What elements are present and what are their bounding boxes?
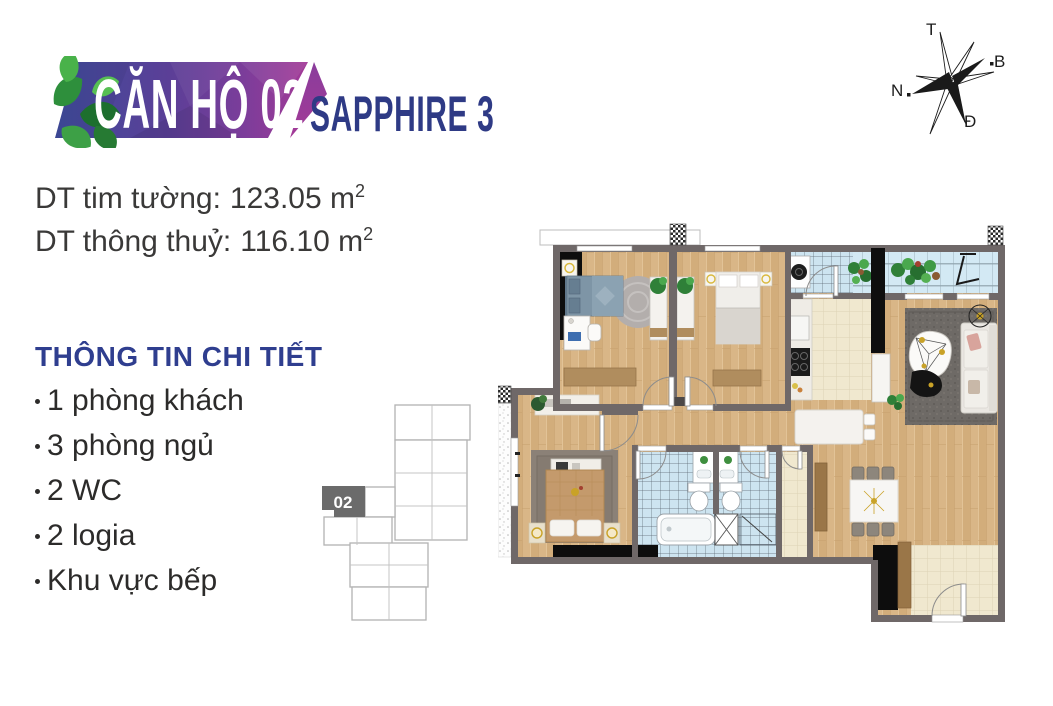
project-name: SAPPHIRE 3: [310, 89, 494, 139]
floor-plan: [498, 220, 1015, 667]
master-wardrobe: [553, 545, 658, 557]
list-item-label: 2 WC: [47, 474, 122, 507]
list-item: 1 phòng khách: [35, 384, 244, 429]
area-sup: 2: [355, 181, 365, 201]
list-item: Khu vực bếp: [35, 564, 244, 609]
fridge: [872, 354, 890, 402]
list-item-label: 2 logia: [47, 519, 135, 552]
adjacent-unit-strip: [498, 403, 511, 557]
list-item: 3 phòng ngủ: [35, 429, 244, 474]
list-item-label: 3 phòng ngủ: [47, 429, 214, 462]
bedroom1-bed: [565, 276, 623, 316]
list-item: 2 WC: [35, 474, 244, 519]
coffee-table: [909, 331, 951, 377]
list-item-label: Khu vực bếp: [47, 564, 217, 597]
kitchen-island: [795, 410, 875, 444]
bedroom2-bench: [713, 370, 761, 386]
details-list: 1 phòng khách 3 phòng ngủ 2 WC 2 logia K…: [35, 384, 244, 609]
unit-title: CĂN HỘ 02: [94, 69, 304, 139]
dining-cabinet: [815, 463, 827, 531]
area-label: DT tim tường:: [35, 182, 221, 215]
service-shaft: [715, 514, 738, 545]
floor-plan-page: CĂN HỘ 02 SAPPHIRE 3 T B N Đ: [0, 0, 1053, 706]
area-sup: 2: [363, 224, 373, 244]
sofa: [961, 323, 997, 413]
area-value: 123.05 m: [230, 182, 355, 215]
unit-02-label: 02: [334, 493, 353, 512]
building-key-plan: 02: [312, 393, 497, 643]
compass: T B N Đ: [888, 12, 1020, 146]
entry-floor: [911, 545, 998, 615]
master-bed: [546, 470, 604, 542]
bullet-icon: [35, 579, 40, 584]
area-label: DT thông thuỷ:: [35, 225, 231, 258]
window-handle: [515, 474, 520, 477]
list-item-label: 1 phòng khách: [47, 384, 244, 417]
compass-rose-icon: [888, 12, 1020, 146]
bullet-icon: [35, 489, 40, 494]
bedroom1-bench: [564, 368, 636, 386]
bullet-icon: [35, 444, 40, 449]
compass-label-b: B: [994, 52, 1005, 72]
washing-machine: [788, 256, 810, 288]
compass-n-dot: [907, 93, 911, 97]
compass-label-n: N: [891, 81, 903, 101]
bullet-icon: [35, 399, 40, 404]
entry-cabinet: [898, 542, 911, 608]
kitchen-floor: [812, 299, 871, 400]
area-line-net: DT thông thuỷ:116.10 m2: [35, 224, 373, 267]
bedroom1-lamp: [562, 260, 577, 276]
area-line-gross: DT tim tường:123.05 m2: [35, 181, 373, 224]
compass-label-t: T: [926, 20, 936, 40]
header-banner: CĂN HỘ 02 SAPPHIRE 3: [40, 56, 540, 148]
compass-b-dot: [990, 62, 994, 66]
details-heading: THÔNG TIN CHI TIẾT: [35, 341, 322, 373]
area-value: 116.10 m: [240, 225, 363, 258]
list-item: 2 logia: [35, 519, 244, 564]
dining-set: [850, 467, 898, 536]
window-handle: [515, 452, 520, 455]
bullet-icon: [35, 534, 40, 539]
kitchen-column-cabinet: [871, 248, 885, 353]
area-summary: DT tim tường:123.05 m2 DT thông thuỷ:116…: [35, 181, 373, 267]
side-table-decor: [929, 383, 934, 388]
compass-label-d: Đ: [964, 112, 976, 132]
